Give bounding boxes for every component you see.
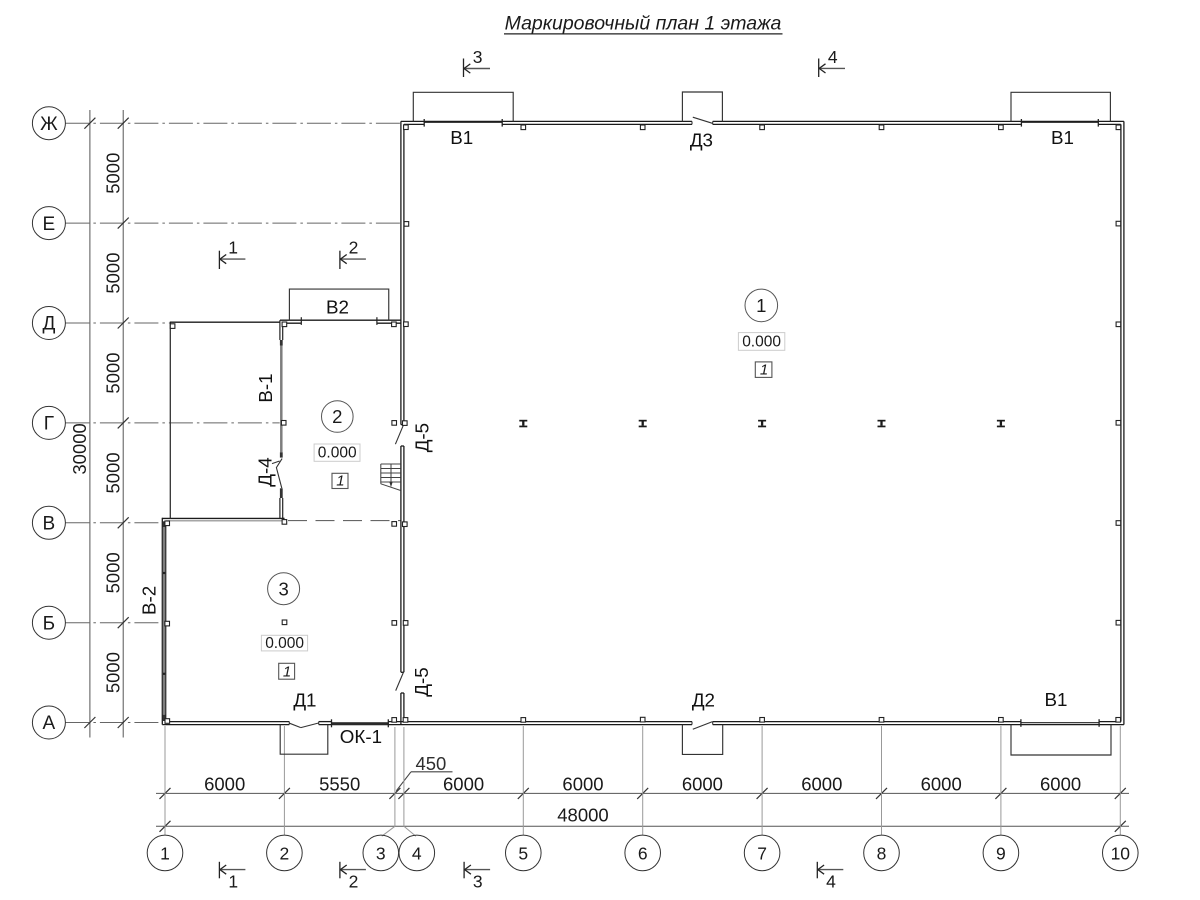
svg-text:Д-5: Д-5 xyxy=(411,423,432,452)
svg-text:5000: 5000 xyxy=(103,652,124,693)
svg-text:3: 3 xyxy=(473,47,483,67)
svg-text:6000: 6000 xyxy=(204,774,245,795)
svg-text:5000: 5000 xyxy=(103,552,124,593)
svg-text:Д: Д xyxy=(42,314,55,335)
svg-text:1: 1 xyxy=(283,663,291,680)
svg-text:3: 3 xyxy=(473,872,483,892)
svg-text:А: А xyxy=(43,713,56,734)
svg-text:6: 6 xyxy=(638,843,648,863)
svg-text:Д3: Д3 xyxy=(690,129,713,150)
svg-text:В-2: В-2 xyxy=(139,586,160,615)
svg-text:7: 7 xyxy=(757,843,767,863)
svg-text:Ж: Ж xyxy=(40,114,58,135)
svg-text:9: 9 xyxy=(996,843,1006,863)
svg-text:1: 1 xyxy=(756,295,766,316)
svg-text:В: В xyxy=(43,514,56,535)
svg-text:2: 2 xyxy=(280,843,290,863)
svg-text:6000: 6000 xyxy=(682,774,723,795)
svg-text:2: 2 xyxy=(349,238,359,258)
svg-text:Д-5: Д-5 xyxy=(411,667,432,696)
svg-text:В2: В2 xyxy=(326,297,349,318)
svg-text:В1: В1 xyxy=(450,127,473,148)
svg-text:3: 3 xyxy=(278,578,288,599)
svg-text:0.000: 0.000 xyxy=(265,635,304,652)
svg-text:5: 5 xyxy=(518,843,528,863)
svg-text:8: 8 xyxy=(877,843,887,863)
svg-text:450: 450 xyxy=(415,753,446,774)
svg-text:3: 3 xyxy=(376,843,386,863)
svg-text:48000: 48000 xyxy=(557,805,608,826)
svg-text:Е: Е xyxy=(43,214,56,235)
svg-text:4: 4 xyxy=(412,843,422,863)
svg-text:В-1: В-1 xyxy=(255,373,276,402)
svg-text:4: 4 xyxy=(828,47,838,67)
svg-text:4: 4 xyxy=(826,872,836,892)
svg-text:В1: В1 xyxy=(1045,689,1068,710)
svg-text:6000: 6000 xyxy=(801,774,842,795)
svg-text:Б: Б xyxy=(43,613,55,634)
svg-text:1: 1 xyxy=(160,843,170,863)
svg-text:5000: 5000 xyxy=(103,452,124,493)
svg-text:1: 1 xyxy=(336,473,344,490)
svg-text:5550: 5550 xyxy=(319,774,360,795)
svg-text:ОК-1: ОК-1 xyxy=(340,726,382,747)
svg-text:6000: 6000 xyxy=(921,774,962,795)
svg-text:5000: 5000 xyxy=(103,352,124,393)
svg-text:0.000: 0.000 xyxy=(742,333,781,350)
svg-text:5000: 5000 xyxy=(103,153,124,194)
svg-text:2: 2 xyxy=(332,406,342,427)
svg-text:Д1: Д1 xyxy=(293,689,316,710)
svg-text:2: 2 xyxy=(349,872,359,892)
svg-text:30000: 30000 xyxy=(69,423,90,474)
svg-text:0.000: 0.000 xyxy=(318,445,357,462)
svg-text:1: 1 xyxy=(228,238,238,258)
svg-text:6000: 6000 xyxy=(562,774,603,795)
svg-text:Д2: Д2 xyxy=(692,690,715,711)
svg-text:В1: В1 xyxy=(1051,127,1074,148)
svg-text:10: 10 xyxy=(1111,843,1131,863)
svg-text:Маркировочный план 1 этажа: Маркировочный план 1 этажа xyxy=(505,13,782,35)
svg-text:1: 1 xyxy=(760,362,768,379)
svg-text:6000: 6000 xyxy=(443,774,484,795)
svg-text:6000: 6000 xyxy=(1040,774,1081,795)
svg-text:Г: Г xyxy=(44,414,54,435)
svg-text:1: 1 xyxy=(228,872,238,892)
svg-text:5000: 5000 xyxy=(103,253,124,294)
svg-text:Д-4: Д-4 xyxy=(255,457,276,486)
